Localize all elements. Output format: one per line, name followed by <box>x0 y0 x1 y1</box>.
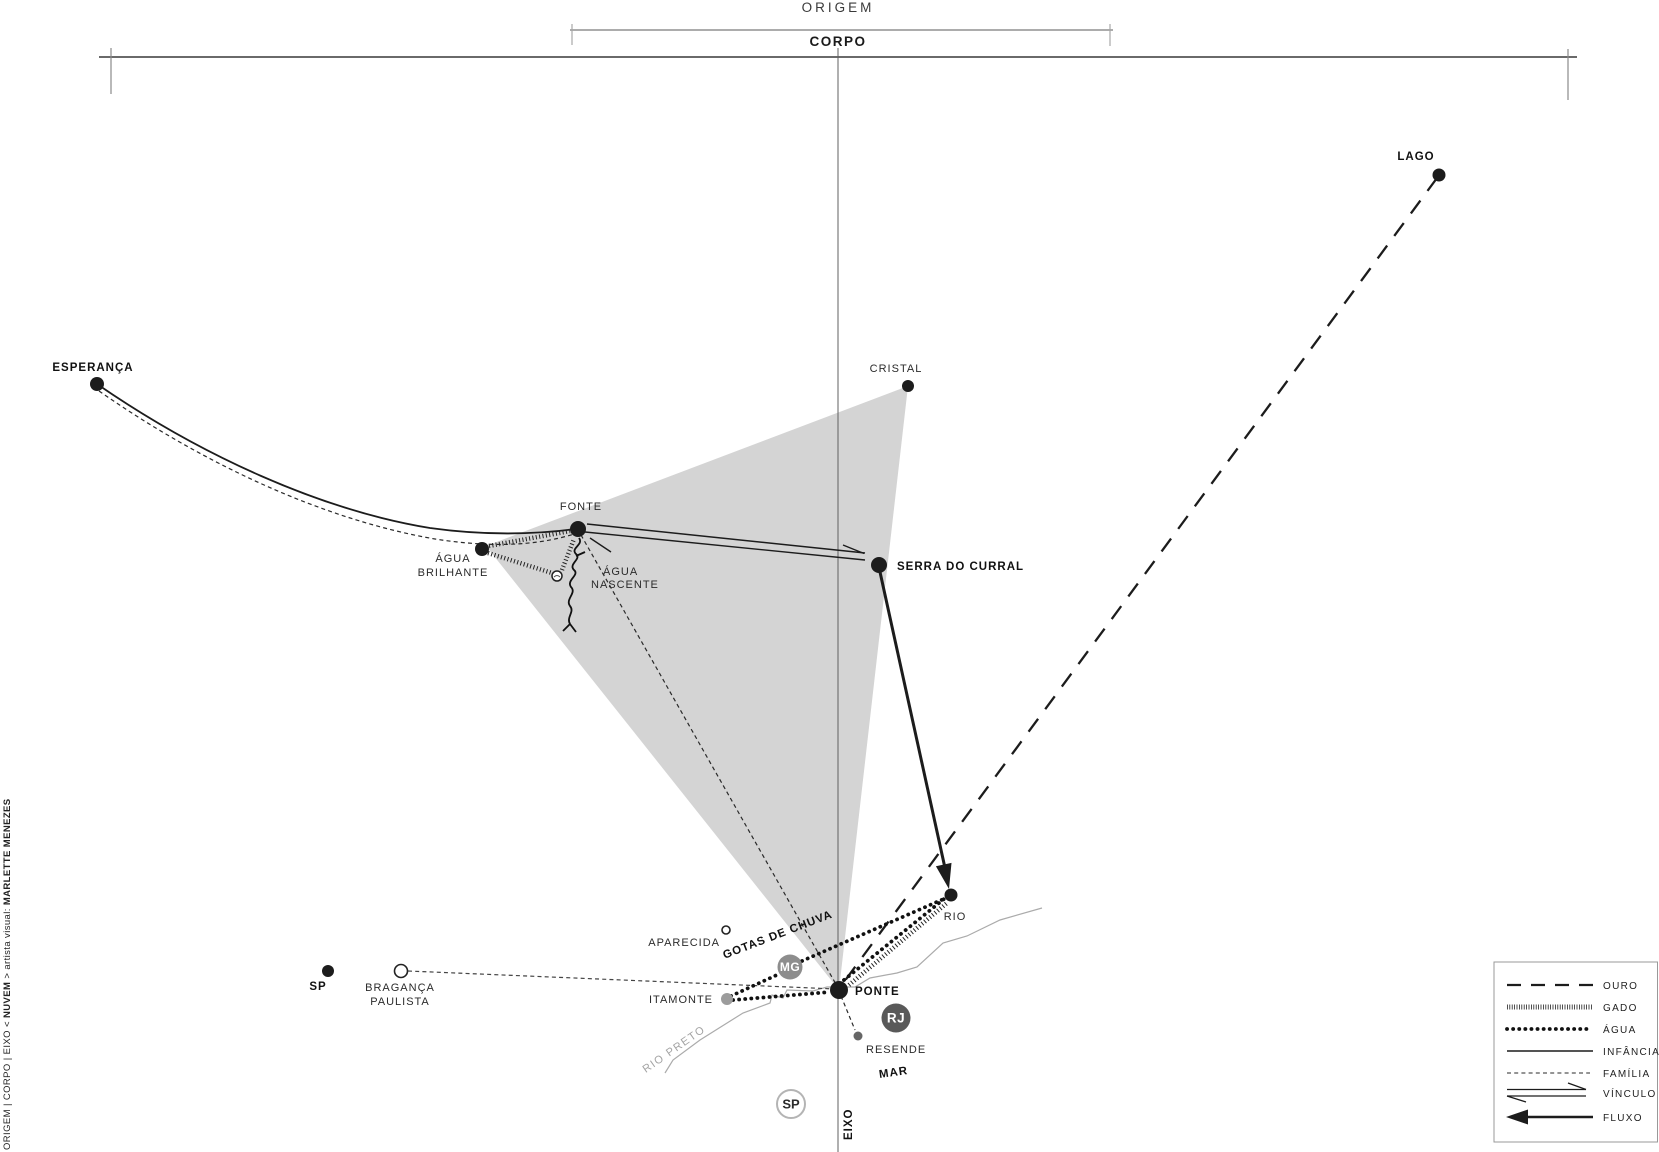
node-label-cristal: CRISTAL <box>870 363 923 375</box>
node-label-fonte: FONTE <box>560 501 602 513</box>
annotation-mar: MAR <box>878 1065 909 1081</box>
node-dot-serra-do-curral <box>871 557 887 573</box>
node-dot-ponte <box>830 981 848 999</box>
badge-mg-label: MG <box>780 960 800 974</box>
node-label-lago: LAGO <box>1397 151 1434 163</box>
node-label-sp: SP <box>309 981 326 993</box>
eixo-axis-label: EIXO <box>843 1109 855 1140</box>
edge-infancia-esperanca-fonte <box>97 384 576 533</box>
river-line <box>665 908 1042 1073</box>
edge-familia-esperanca-fonte <box>99 391 574 544</box>
node-label-agua-nascente-1: ÁGUA <box>603 565 638 578</box>
node-label-agua-brilhante-1: ÁGUA <box>435 552 470 565</box>
legend-label-agua: ÁGUA <box>1603 1023 1637 1036</box>
credit-middle: > artista visual: <box>2 905 13 982</box>
node-label-esperanca: ESPERANÇA <box>52 362 133 374</box>
node-label-ponte: PONTE <box>855 986 900 998</box>
credit-line: ORIGEM | CORPO | EIXO < NUVEM > artista … <box>2 798 13 1150</box>
diagram-stage: MG RJ SP ORIGEM CORPO EIXO ESPERANÇA LAG… <box>0 0 1659 1152</box>
edge-familia-ponte-resende <box>841 996 855 1030</box>
node-dot-lago <box>1433 169 1446 182</box>
legend-label-familia: FAMÍLIA <box>1603 1067 1650 1080</box>
node-label-itamonte: ITAMONTE <box>649 994 713 1006</box>
badge-rj-label: RJ <box>887 1011 905 1026</box>
node-label-resende: RESENDE <box>866 1044 926 1056</box>
node-dot-resende <box>854 1032 863 1041</box>
node-dot-itamonte <box>721 993 733 1005</box>
edge-familia-braganca-ponte <box>408 971 836 989</box>
diagram-canvas: MG RJ SP ORIGEM CORPO EIXO ESPERANÇA LAG… <box>0 0 1659 1152</box>
credit-project: NUVEM <box>2 982 13 1018</box>
node-label-agua-brilhante-2: BRILHANTE <box>418 567 489 579</box>
node-dot-cristal <box>902 380 914 392</box>
credit-author: MARLETTE MENEZES <box>2 798 13 905</box>
legend-label-vinculo: VÍNCULO <box>1603 1087 1657 1100</box>
node-dot-aparecida <box>722 926 730 934</box>
node-label-agua-nascente-2: NASCENTE <box>591 579 659 591</box>
shaded-triangle <box>486 386 908 990</box>
origem-title: ORIGEM <box>802 0 875 15</box>
node-dot-esperanca <box>90 377 104 391</box>
node-dot-sp <box>322 965 334 977</box>
node-dot-agua-brilhante <box>475 542 489 556</box>
node-label-braganca-2: PAULISTA <box>370 996 430 1008</box>
edge-agua-itamonte-ponte <box>733 992 830 1000</box>
legend: OURO GADO ÁGUA INFÂNCIA FAMÍLIA VÍNCULO <box>1494 962 1659 1142</box>
edge-ouro-lago-ponte <box>841 178 1437 986</box>
annotation-rio-preto: RIO PRETO <box>641 1023 708 1075</box>
corpo-title: CORPO <box>809 34 866 49</box>
node-label-rio: RIO <box>944 911 967 923</box>
node-label-serra-do-curral: SERRA DO CURRAL <box>897 561 1024 573</box>
badge-sp-label: SP <box>782 1097 800 1112</box>
legend-label-ouro: OURO <box>1603 981 1638 992</box>
fluxo-arrowhead <box>936 863 952 889</box>
edge-fluxo-serra-rio <box>880 572 945 868</box>
edge-agua-ponte-rio <box>844 899 944 980</box>
node-dot-rio <box>945 889 958 902</box>
node-dot-braganca <box>395 965 408 978</box>
legend-label-fluxo: FLUXO <box>1603 1113 1643 1124</box>
node-label-braganca-1: BRAGANÇA <box>365 982 435 994</box>
credit-prefix: ORIGEM | CORPO | EIXO < <box>2 1018 13 1150</box>
node-label-aparecida: APARECIDA <box>648 937 720 949</box>
node-dot-fonte <box>570 521 586 537</box>
legend-label-infancia: INFÂNCIA <box>1603 1045 1659 1058</box>
legend-label-gado: GADO <box>1603 1003 1638 1014</box>
